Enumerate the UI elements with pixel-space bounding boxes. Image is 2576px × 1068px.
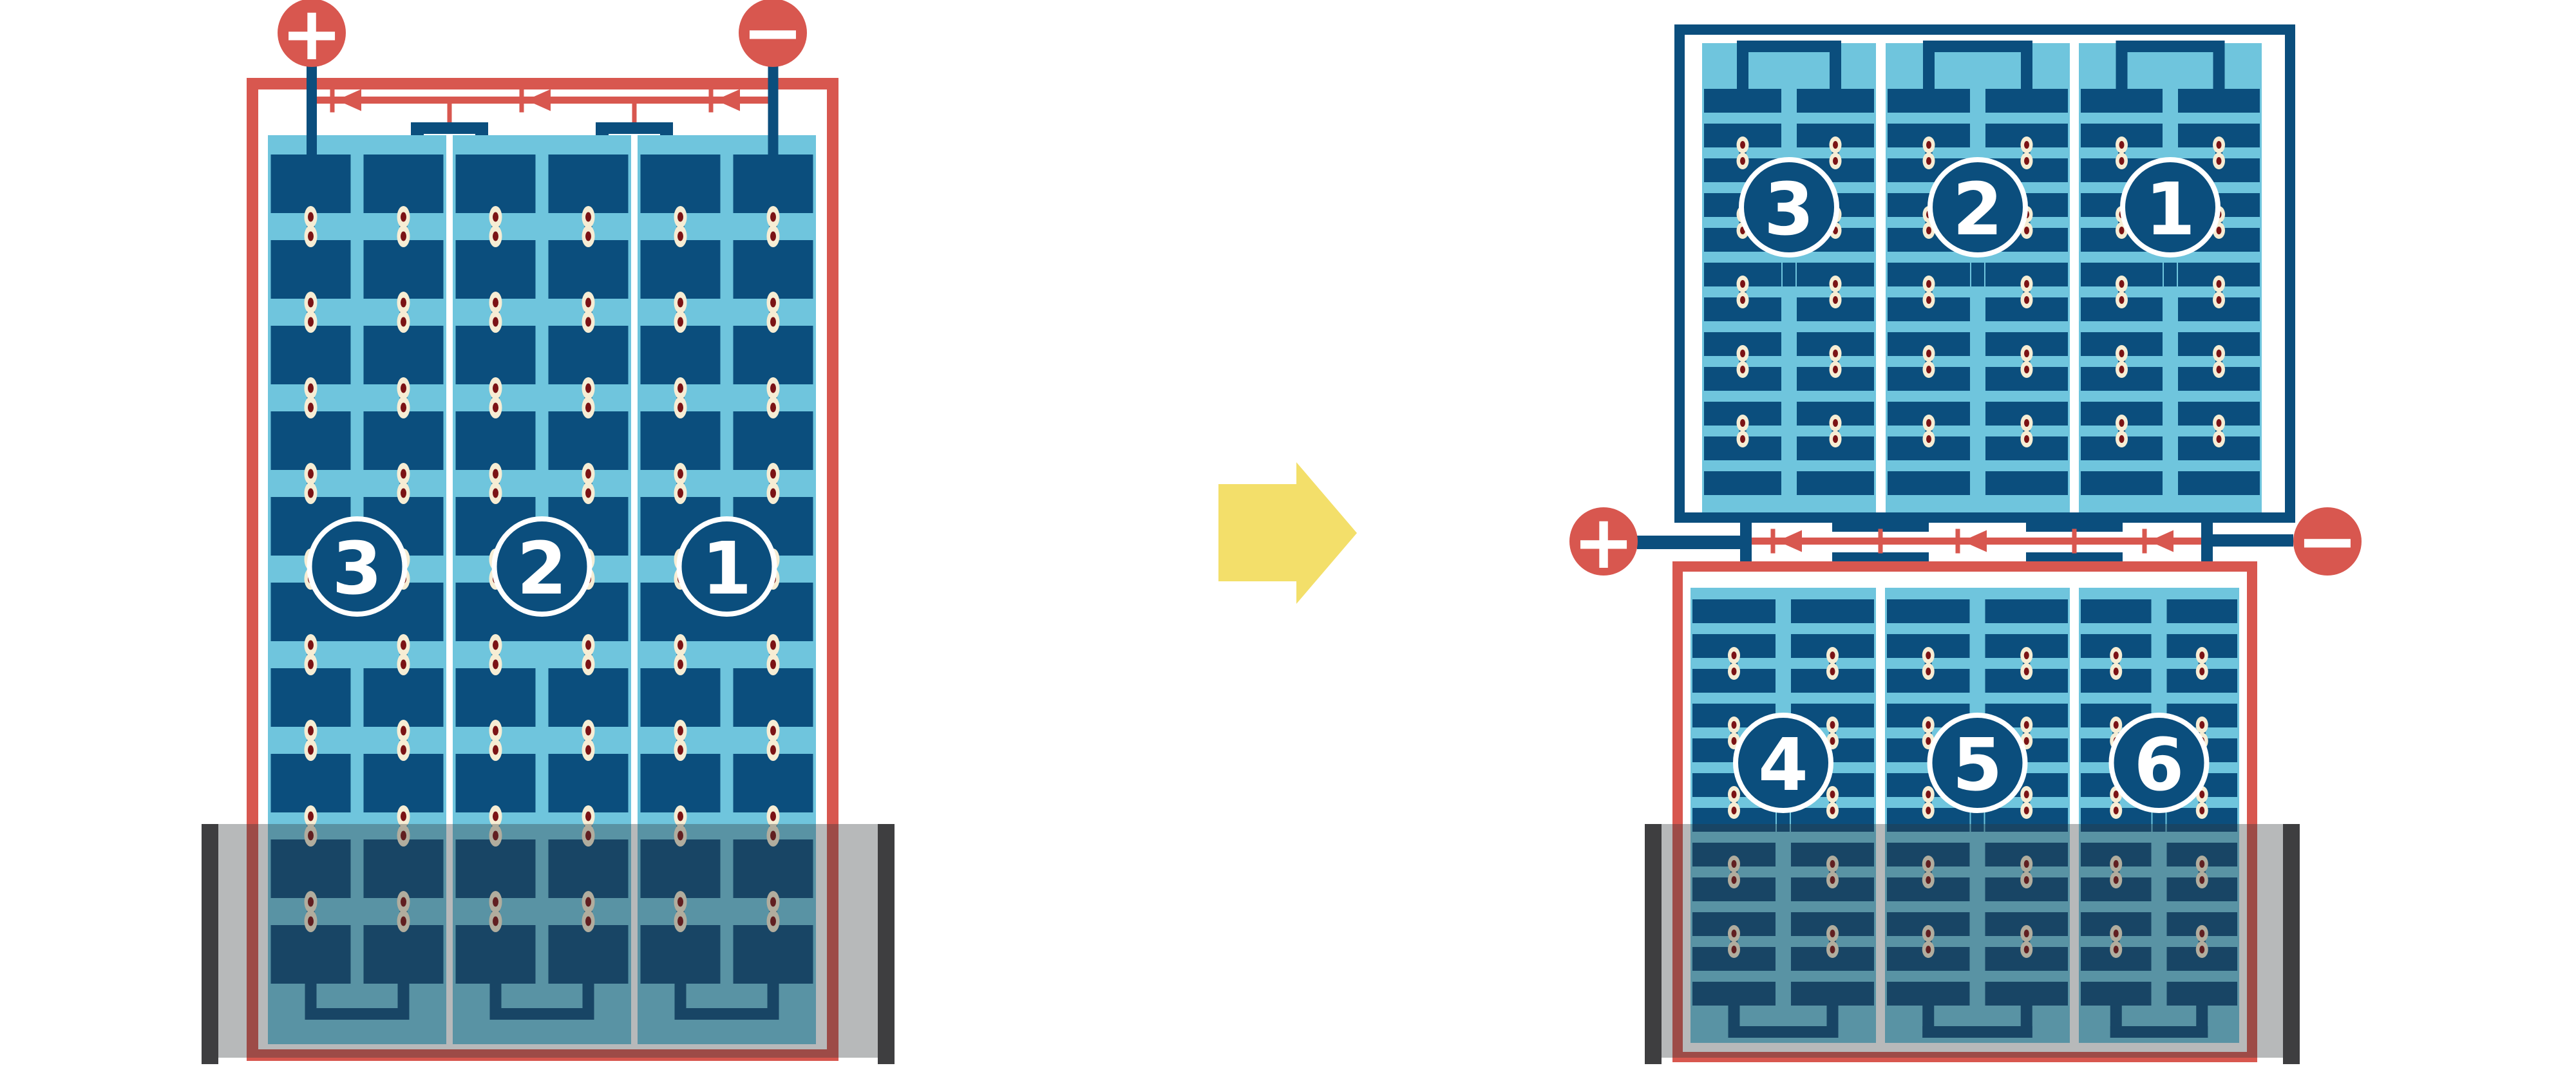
right-battery-top-unit: 321 [1674,24,2295,523]
cell-number-badge: 3 [1741,160,1837,255]
plus-terminal-label: + [281,0,343,77]
cell-number-badge: 6 [2112,715,2207,810]
plus-terminal-icon: + [1569,500,1638,586]
cell-number-badge: 4 [1736,715,1831,810]
diagram-svg: 321+−321+−456 [0,0,2576,1068]
transform-arrow-icon [1218,462,1357,604]
cell-number-label: 2 [1953,168,2003,252]
minus-terminal-label: − [2297,498,2358,585]
cell-number-label: 1 [2145,168,2195,252]
plus-terminal-label: + [1573,500,1634,586]
cell-number-label: 2 [517,527,567,611]
cell-number-label: 5 [1953,724,2003,807]
cell-number-label: 3 [1764,168,1814,252]
minus-terminal-icon: − [2293,498,2362,585]
cell-number-label: 3 [332,527,383,611]
holder-left [202,824,895,1064]
holder-right [1645,824,2300,1064]
cell-number-badge: 2 [1930,160,2025,255]
cell-number-badge: 2 [495,519,590,614]
minus-terminal-icon: − [739,0,807,76]
cell-number-label: 6 [2134,724,2184,807]
cell-number-badge: 5 [1930,715,2025,810]
minus-terminal-label: − [742,0,804,76]
cell-number-badge: 3 [310,519,405,614]
cell-number-badge: 1 [679,519,775,614]
cell-number-label: 1 [702,527,752,611]
plus-terminal-icon: + [278,0,346,77]
cell-number-badge: 1 [2123,160,2218,255]
battery-wiring-diagram: 321+−321+−456 [0,0,2576,1068]
cell-number-label: 4 [1758,724,1808,807]
